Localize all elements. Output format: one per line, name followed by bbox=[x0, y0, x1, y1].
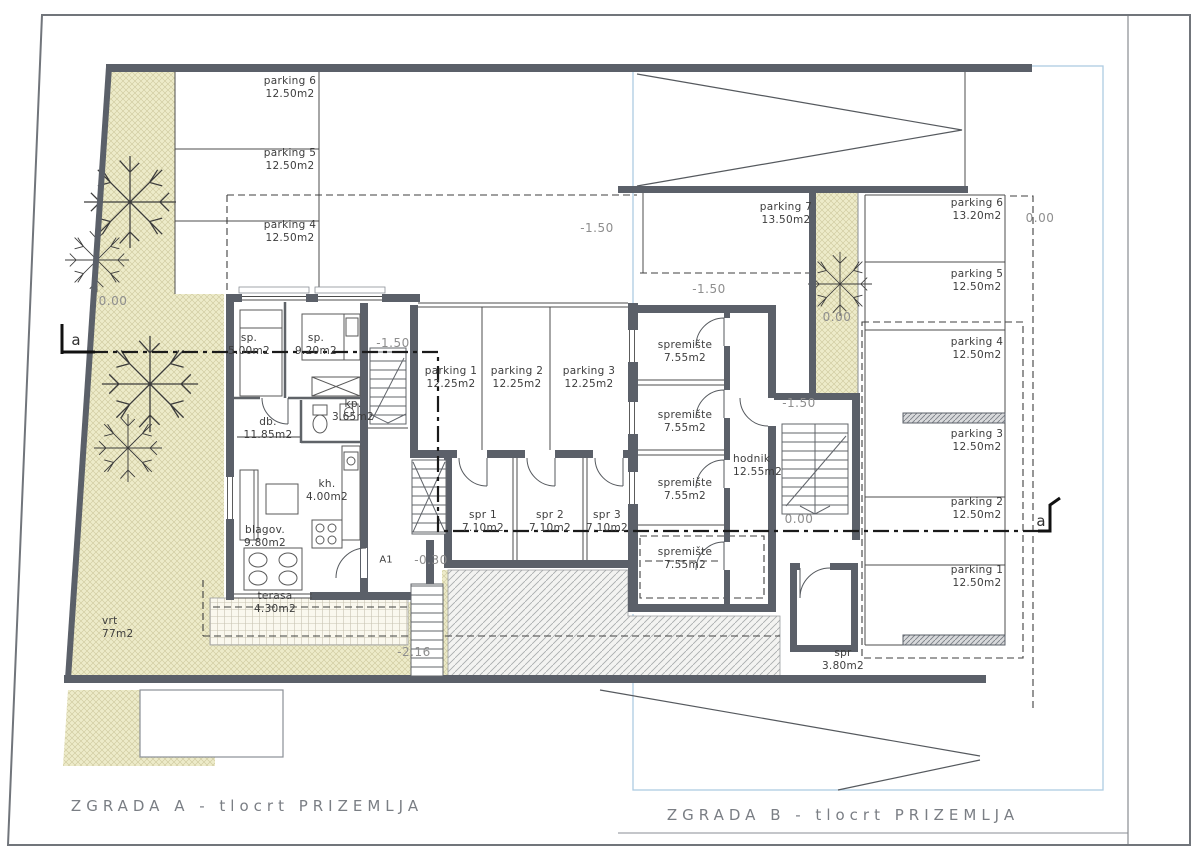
a-garage-parking-2-label: parking 212.25m2 bbox=[491, 365, 543, 391]
floor-plan-drawing bbox=[0, 0, 1200, 848]
b-level-right: 0.00 bbox=[1026, 211, 1055, 225]
building-b-windows bbox=[627, 330, 638, 504]
section-marker-right: a bbox=[1036, 512, 1045, 530]
terrace-area bbox=[210, 598, 408, 645]
b-level-stairs-bottom: 0.00 bbox=[785, 512, 814, 526]
b-parking-3-label: parking 312.50m2 bbox=[951, 428, 1003, 454]
a-level-stairs: -1.50 bbox=[376, 336, 410, 350]
a-entry-door-tag: A1 bbox=[379, 555, 392, 566]
a-bedroom1-label: sp.5.00m2 bbox=[228, 332, 270, 358]
a-terrace-label: terasa4.30m2 bbox=[254, 590, 296, 616]
a-level-upper: -1.50 bbox=[580, 221, 614, 235]
a-spr-2-label: spr 27.10m2 bbox=[529, 509, 571, 535]
a-parking-6-label: parking 612.50m2 bbox=[264, 75, 316, 101]
lower-plot-rect bbox=[140, 690, 283, 757]
a-parking-4-label: parking 412.50m2 bbox=[264, 219, 316, 245]
b-parking-4-label: parking 412.50m2 bbox=[951, 336, 1003, 362]
a-spr-1-label: spr 17.10m2 bbox=[462, 509, 504, 535]
a-level-entry: -0.30 bbox=[414, 553, 448, 567]
a-living-label: db.11.85m2 bbox=[243, 416, 292, 442]
a-level-garden: 0.00 bbox=[99, 294, 128, 308]
b-parking-2-label: parking 212.50m2 bbox=[951, 496, 1003, 522]
a-garage-parking-1-label: parking 112.25m2 bbox=[425, 365, 477, 391]
floor-plan-sheet: parking 612.50m2 parking 512.50m2 parkin… bbox=[0, 0, 1200, 848]
b-parking-1-label: parking 112.50m2 bbox=[951, 564, 1003, 590]
b-level-p7: -1.50 bbox=[692, 282, 726, 296]
title-building-a: ZGRADA A - tlocrt PRIZEMLJA bbox=[71, 797, 423, 815]
a-garage-parking-3-label: parking 312.25m2 bbox=[563, 365, 615, 391]
a-parking-5-label: parking 512.50m2 bbox=[264, 147, 316, 173]
a-kitchen-label: kh.4.00m2 bbox=[306, 478, 348, 504]
building-b-stairs bbox=[782, 424, 848, 514]
b-corridor-label: hodnik12.55m2 bbox=[733, 453, 782, 479]
title-building-b: ZGRADA B - tlocrt PRIZEMLJA bbox=[667, 806, 1019, 824]
b-spremiste-1-label: spremište7.55m2 bbox=[658, 339, 713, 365]
b-parking-6-label: parking 613.20m2 bbox=[951, 197, 1003, 223]
b-parking-7-label: parking 713.50m2 bbox=[760, 201, 812, 227]
b-spr-label: spr3.80m2 bbox=[822, 647, 864, 673]
b-level-stairs-top: -1.50 bbox=[782, 396, 816, 410]
a-level-ramp: -2.16 bbox=[397, 645, 431, 659]
b-level-strip: 0.00 bbox=[823, 310, 852, 324]
a-dining-label: blagov.9.80m2 bbox=[244, 524, 286, 550]
a-spr-3-label: spr 37.10m2 bbox=[586, 509, 628, 535]
b-spremiste-4-label: spremište7.55m2 bbox=[658, 546, 713, 572]
a-bath-label: kp.3.65m2 bbox=[332, 398, 374, 424]
b-spremiste-2-label: spremište7.55m2 bbox=[658, 409, 713, 435]
a-bedroom2-label: sp.9.20m2 bbox=[295, 332, 337, 358]
b-spremiste-3-label: spremište7.55m2 bbox=[658, 477, 713, 503]
a-garden-label: vrt77m2 bbox=[102, 615, 133, 641]
b-parking-5-label: parking 512.50m2 bbox=[951, 268, 1003, 294]
section-marker-left: a bbox=[71, 331, 80, 349]
